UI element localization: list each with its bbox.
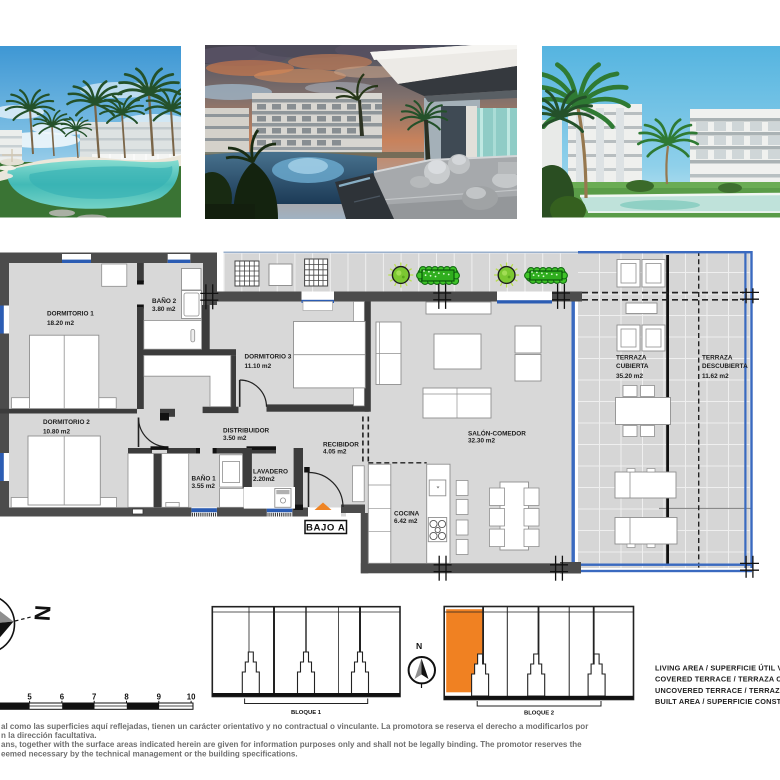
svg-text:BAJO A: BAJO A bbox=[306, 523, 346, 534]
svg-text:UNCOVERED TERRACE / TERRAZA DE: UNCOVERED TERRACE / TERRAZA DESCUBIERTA bbox=[655, 686, 780, 695]
svg-text:BAÑO 2: BAÑO 2 bbox=[152, 296, 177, 305]
svg-text:ans, together with the surface: ans, together with the surface areas ind… bbox=[1, 740, 582, 749]
svg-text:10: 10 bbox=[187, 693, 196, 702]
svg-text:6: 6 bbox=[60, 693, 65, 702]
svg-text:COVERED TERRACE / TERRAZA CUBI: COVERED TERRACE / TERRAZA CUBIERTA bbox=[655, 675, 780, 684]
svg-text:5: 5 bbox=[27, 693, 32, 702]
svg-text:7: 7 bbox=[92, 693, 96, 702]
svg-text:8: 8 bbox=[124, 693, 129, 702]
svg-text:COCINA: COCINA bbox=[394, 511, 420, 518]
svg-text:DORMITORIO 1: DORMITORIO 1 bbox=[47, 311, 94, 318]
svg-text:4.05 m2: 4.05 m2 bbox=[323, 449, 347, 456]
svg-text:3.50 m2: 3.50 m2 bbox=[223, 435, 247, 442]
svg-text:n la dirección facultativa.: n la dirección facultativa. bbox=[1, 731, 97, 740]
svg-text:eemed necessary by the technic: eemed necessary by the technical managem… bbox=[1, 749, 298, 758]
svg-text:3.80 m2: 3.80 m2 bbox=[152, 306, 176, 313]
svg-text:DISTRIBUIDOR: DISTRIBUIDOR bbox=[223, 428, 270, 435]
svg-text:DORMITORIO 3: DORMITORIO 3 bbox=[245, 354, 292, 361]
svg-text:9: 9 bbox=[157, 693, 162, 702]
svg-text:32.30 m2: 32.30 m2 bbox=[468, 438, 495, 445]
svg-text:TERRAZA: TERRAZA bbox=[702, 355, 733, 362]
svg-text:RECIBIDOR: RECIBIDOR bbox=[323, 442, 359, 449]
svg-text:10.80 m2: 10.80 m2 bbox=[43, 429, 70, 436]
svg-text:DORMITORIO 2: DORMITORIO 2 bbox=[43, 419, 90, 426]
svg-text:11.10 m2: 11.10 m2 bbox=[245, 363, 272, 370]
svg-text:11.62 m2: 11.62 m2 bbox=[702, 373, 729, 380]
svg-text:TERRAZA: TERRAZA bbox=[616, 355, 647, 362]
svg-text:N: N bbox=[416, 641, 422, 651]
svg-text:35.20 m2: 35.20 m2 bbox=[616, 373, 643, 380]
svg-text:DESCUBIERTA: DESCUBIERTA bbox=[702, 363, 748, 370]
svg-text:6.42 m2: 6.42 m2 bbox=[394, 518, 418, 525]
svg-text:2.20m2: 2.20m2 bbox=[253, 476, 275, 483]
svg-text:BUILT AREA / SUPERFICIE CONSTR: BUILT AREA / SUPERFICIE CONSTRUIDA bbox=[655, 697, 780, 706]
svg-text:BLOQUE 1: BLOQUE 1 bbox=[291, 710, 322, 716]
svg-text:LIVING AREA / SUPERFICIE ÚTIL: LIVING AREA / SUPERFICIE ÚTIL VIVIENDA bbox=[655, 664, 780, 673]
svg-text:3.55 m2: 3.55 m2 bbox=[192, 483, 216, 490]
svg-text:N: N bbox=[30, 604, 56, 622]
svg-text:BAÑO 1: BAÑO 1 bbox=[192, 474, 217, 483]
svg-text:LAVADERO: LAVADERO bbox=[253, 469, 288, 476]
svg-text:18.20 m2: 18.20 m2 bbox=[47, 320, 74, 327]
svg-text:SALÓN-COMEDOR: SALÓN-COMEDOR bbox=[468, 429, 526, 438]
svg-text:CUBIERTA: CUBIERTA bbox=[616, 363, 649, 370]
svg-text:BLOQUE 2: BLOQUE 2 bbox=[524, 711, 555, 717]
svg-text:al como las superficies aquí r: al como las superficies aquí reflejadas,… bbox=[1, 722, 588, 731]
